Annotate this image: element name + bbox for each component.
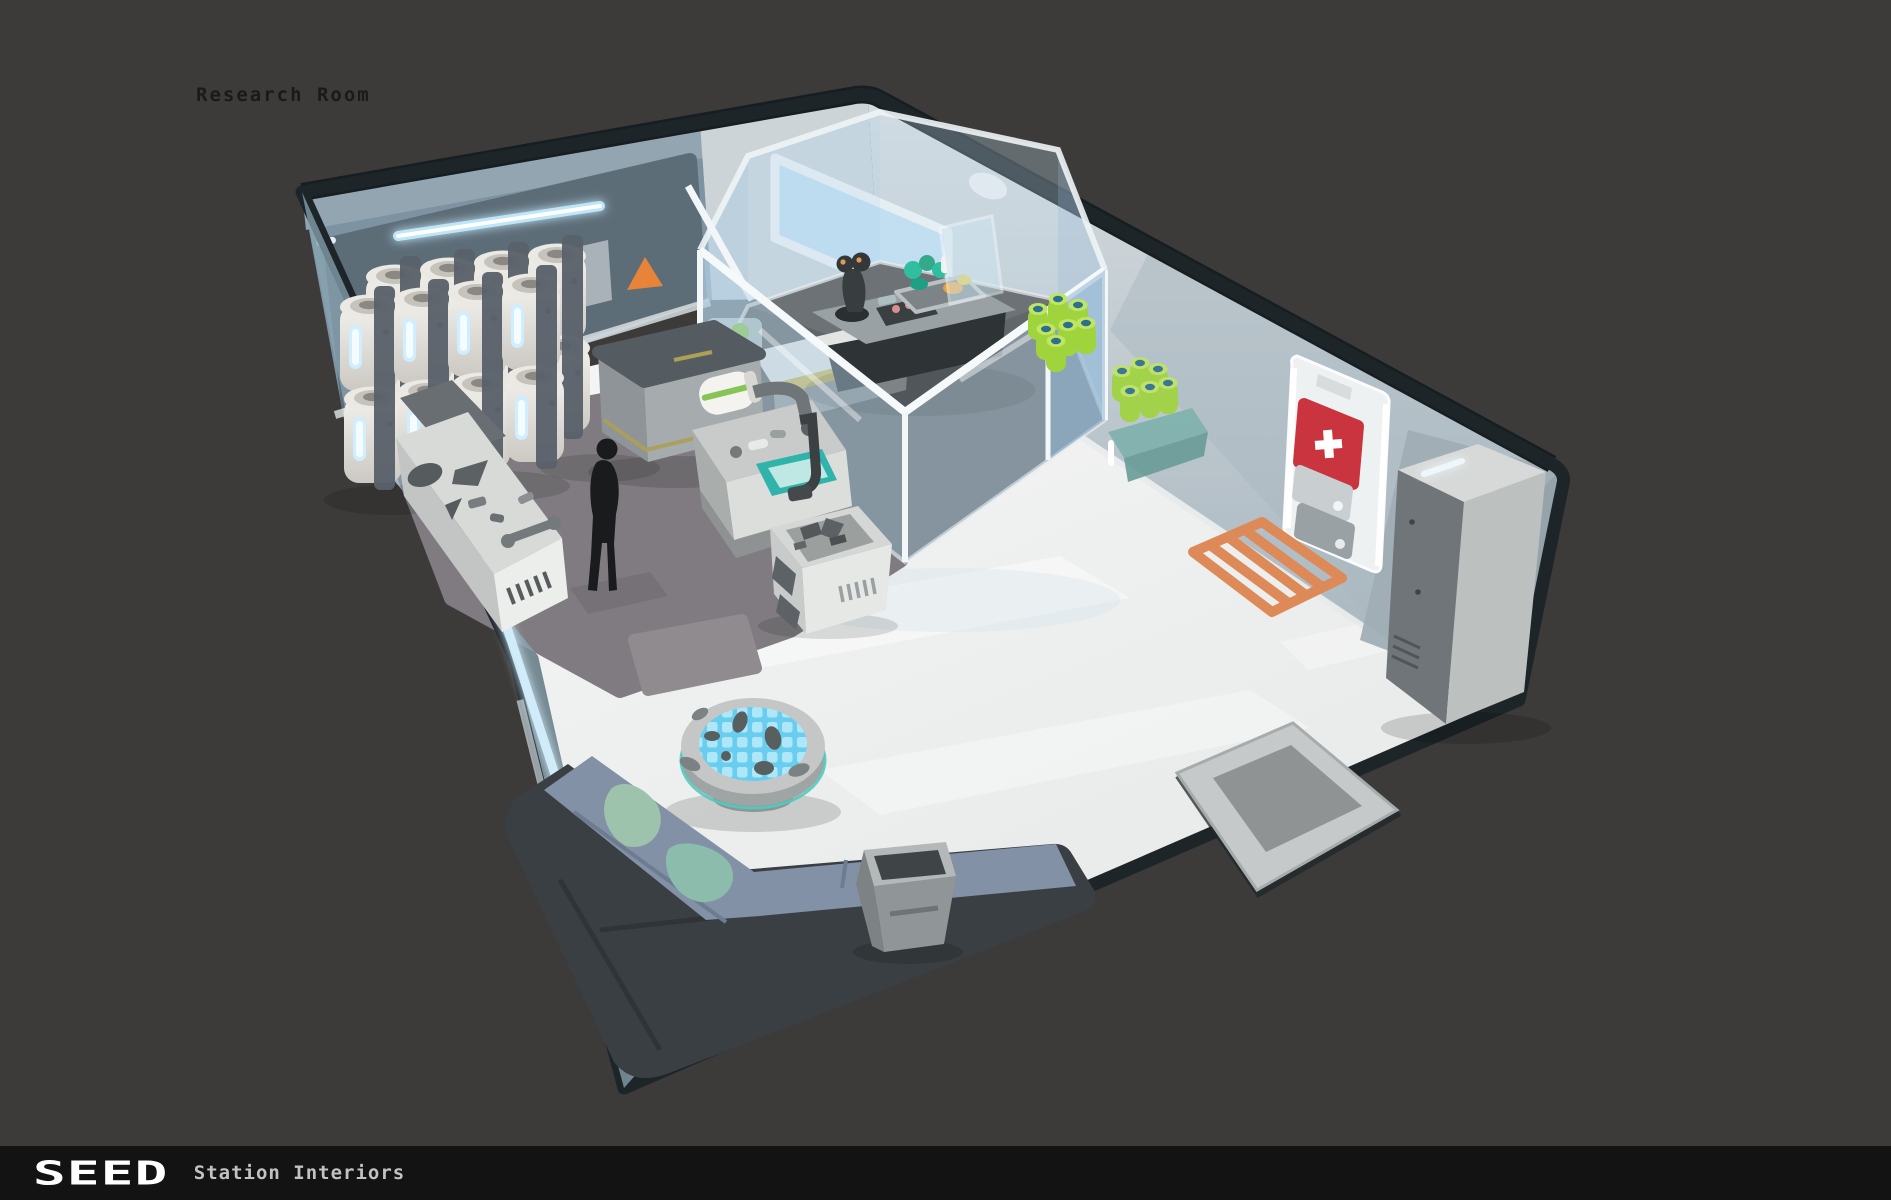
seed-logo: SEED bbox=[33, 1156, 168, 1189]
waste-bin bbox=[853, 842, 963, 964]
footer-subtitle: Station Interiors bbox=[194, 1162, 405, 1184]
medical-cabinet bbox=[1284, 356, 1389, 572]
footer-bar: SEED Station Interiors bbox=[0, 1146, 1891, 1200]
page-title: Research Room bbox=[196, 84, 371, 106]
research-room-illustration bbox=[0, 0, 1891, 1200]
concept-art-canvas: Research Room SEED Station Interiors bbox=[0, 0, 1891, 1200]
